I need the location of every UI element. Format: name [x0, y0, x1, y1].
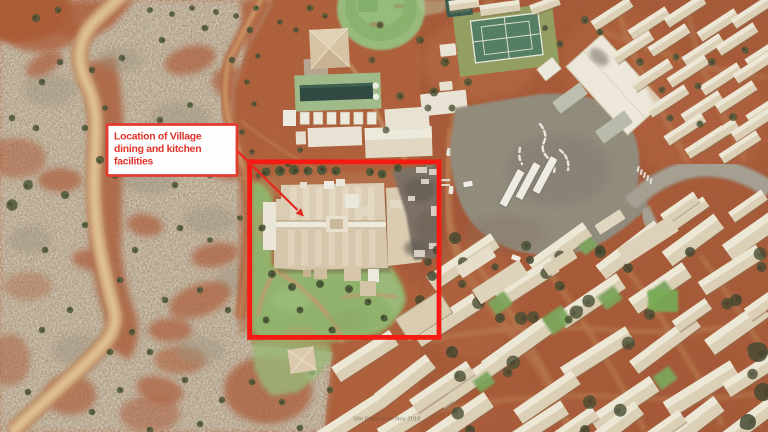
svg-text:dining and kitchen: dining and kitchen: [114, 144, 201, 155]
svg-text:facilities: facilities: [114, 157, 154, 168]
svg-text:Location of Village: Location of Village: [114, 132, 202, 143]
